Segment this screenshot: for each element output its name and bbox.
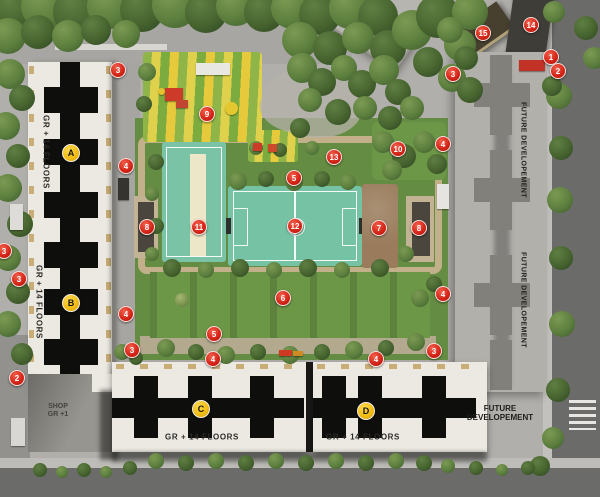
marker-4: 4	[205, 351, 221, 367]
marker-15: 15	[475, 25, 491, 41]
shop-label-line1: SHOP	[48, 403, 68, 411]
marker-3: 3	[110, 62, 126, 78]
marker-11: 11	[191, 219, 207, 235]
future-development-label-vertical-1: FUTURE DEVELOPEMENT	[520, 102, 527, 198]
marker-6: 6	[275, 290, 291, 306]
floors-label-a: GR + 14 FLOORS	[42, 115, 51, 189]
marker-5: 5	[286, 170, 302, 186]
marker-9: 9	[199, 106, 215, 122]
marker-building-c: C	[192, 400, 210, 418]
floors-label-c: GR + 14 FLOORS	[165, 433, 239, 442]
marker-2: 2	[550, 63, 566, 79]
marker-4: 4	[118, 306, 134, 322]
future-label-line2: DEVELOPEMENT	[467, 413, 533, 422]
marker-12: 12	[287, 218, 303, 234]
floors-label-b: GR + 14 FLOORS	[35, 265, 44, 339]
shop-label: SHOP GR +1	[48, 403, 68, 419]
marker-4: 4	[435, 136, 451, 152]
marker-4: 4	[435, 286, 451, 302]
marker-building-b: B	[62, 294, 80, 312]
marker-4: 4	[368, 351, 384, 367]
floors-label-d: GR + 14 FLOORS	[326, 433, 400, 442]
marker-10: 10	[390, 141, 406, 157]
marker-14: 14	[523, 17, 539, 33]
shop-label-line2: GR +1	[48, 411, 68, 419]
marker-13: 13	[326, 149, 342, 165]
marker-8: 8	[139, 219, 155, 235]
marker-3: 3	[445, 66, 461, 82]
marker-3: 3	[426, 343, 442, 359]
marker-2: 2	[9, 370, 25, 386]
site-master-plan: GR + 14 FLOORS GR + 14 FLOORS GR + 14 FL…	[0, 0, 600, 497]
marker-7: 7	[371, 220, 387, 236]
future-development-label-horizontal: FUTURE DEVELOPEMENT	[467, 404, 533, 422]
marker-building-a: A	[62, 144, 80, 162]
marker-3: 3	[0, 243, 12, 259]
future-development-label-vertical-2: FUTURE DEVELOPEMENT	[520, 252, 527, 348]
marker-4: 4	[118, 158, 134, 174]
marker-3: 3	[11, 271, 27, 287]
markers-layer: 1223333334444445567889101112131415ABCD	[0, 0, 600, 497]
marker-8: 8	[411, 220, 427, 236]
marker-5: 5	[206, 326, 222, 342]
future-label-line1: FUTURE	[467, 404, 533, 413]
marker-building-d: D	[357, 402, 375, 420]
marker-3: 3	[124, 342, 140, 358]
